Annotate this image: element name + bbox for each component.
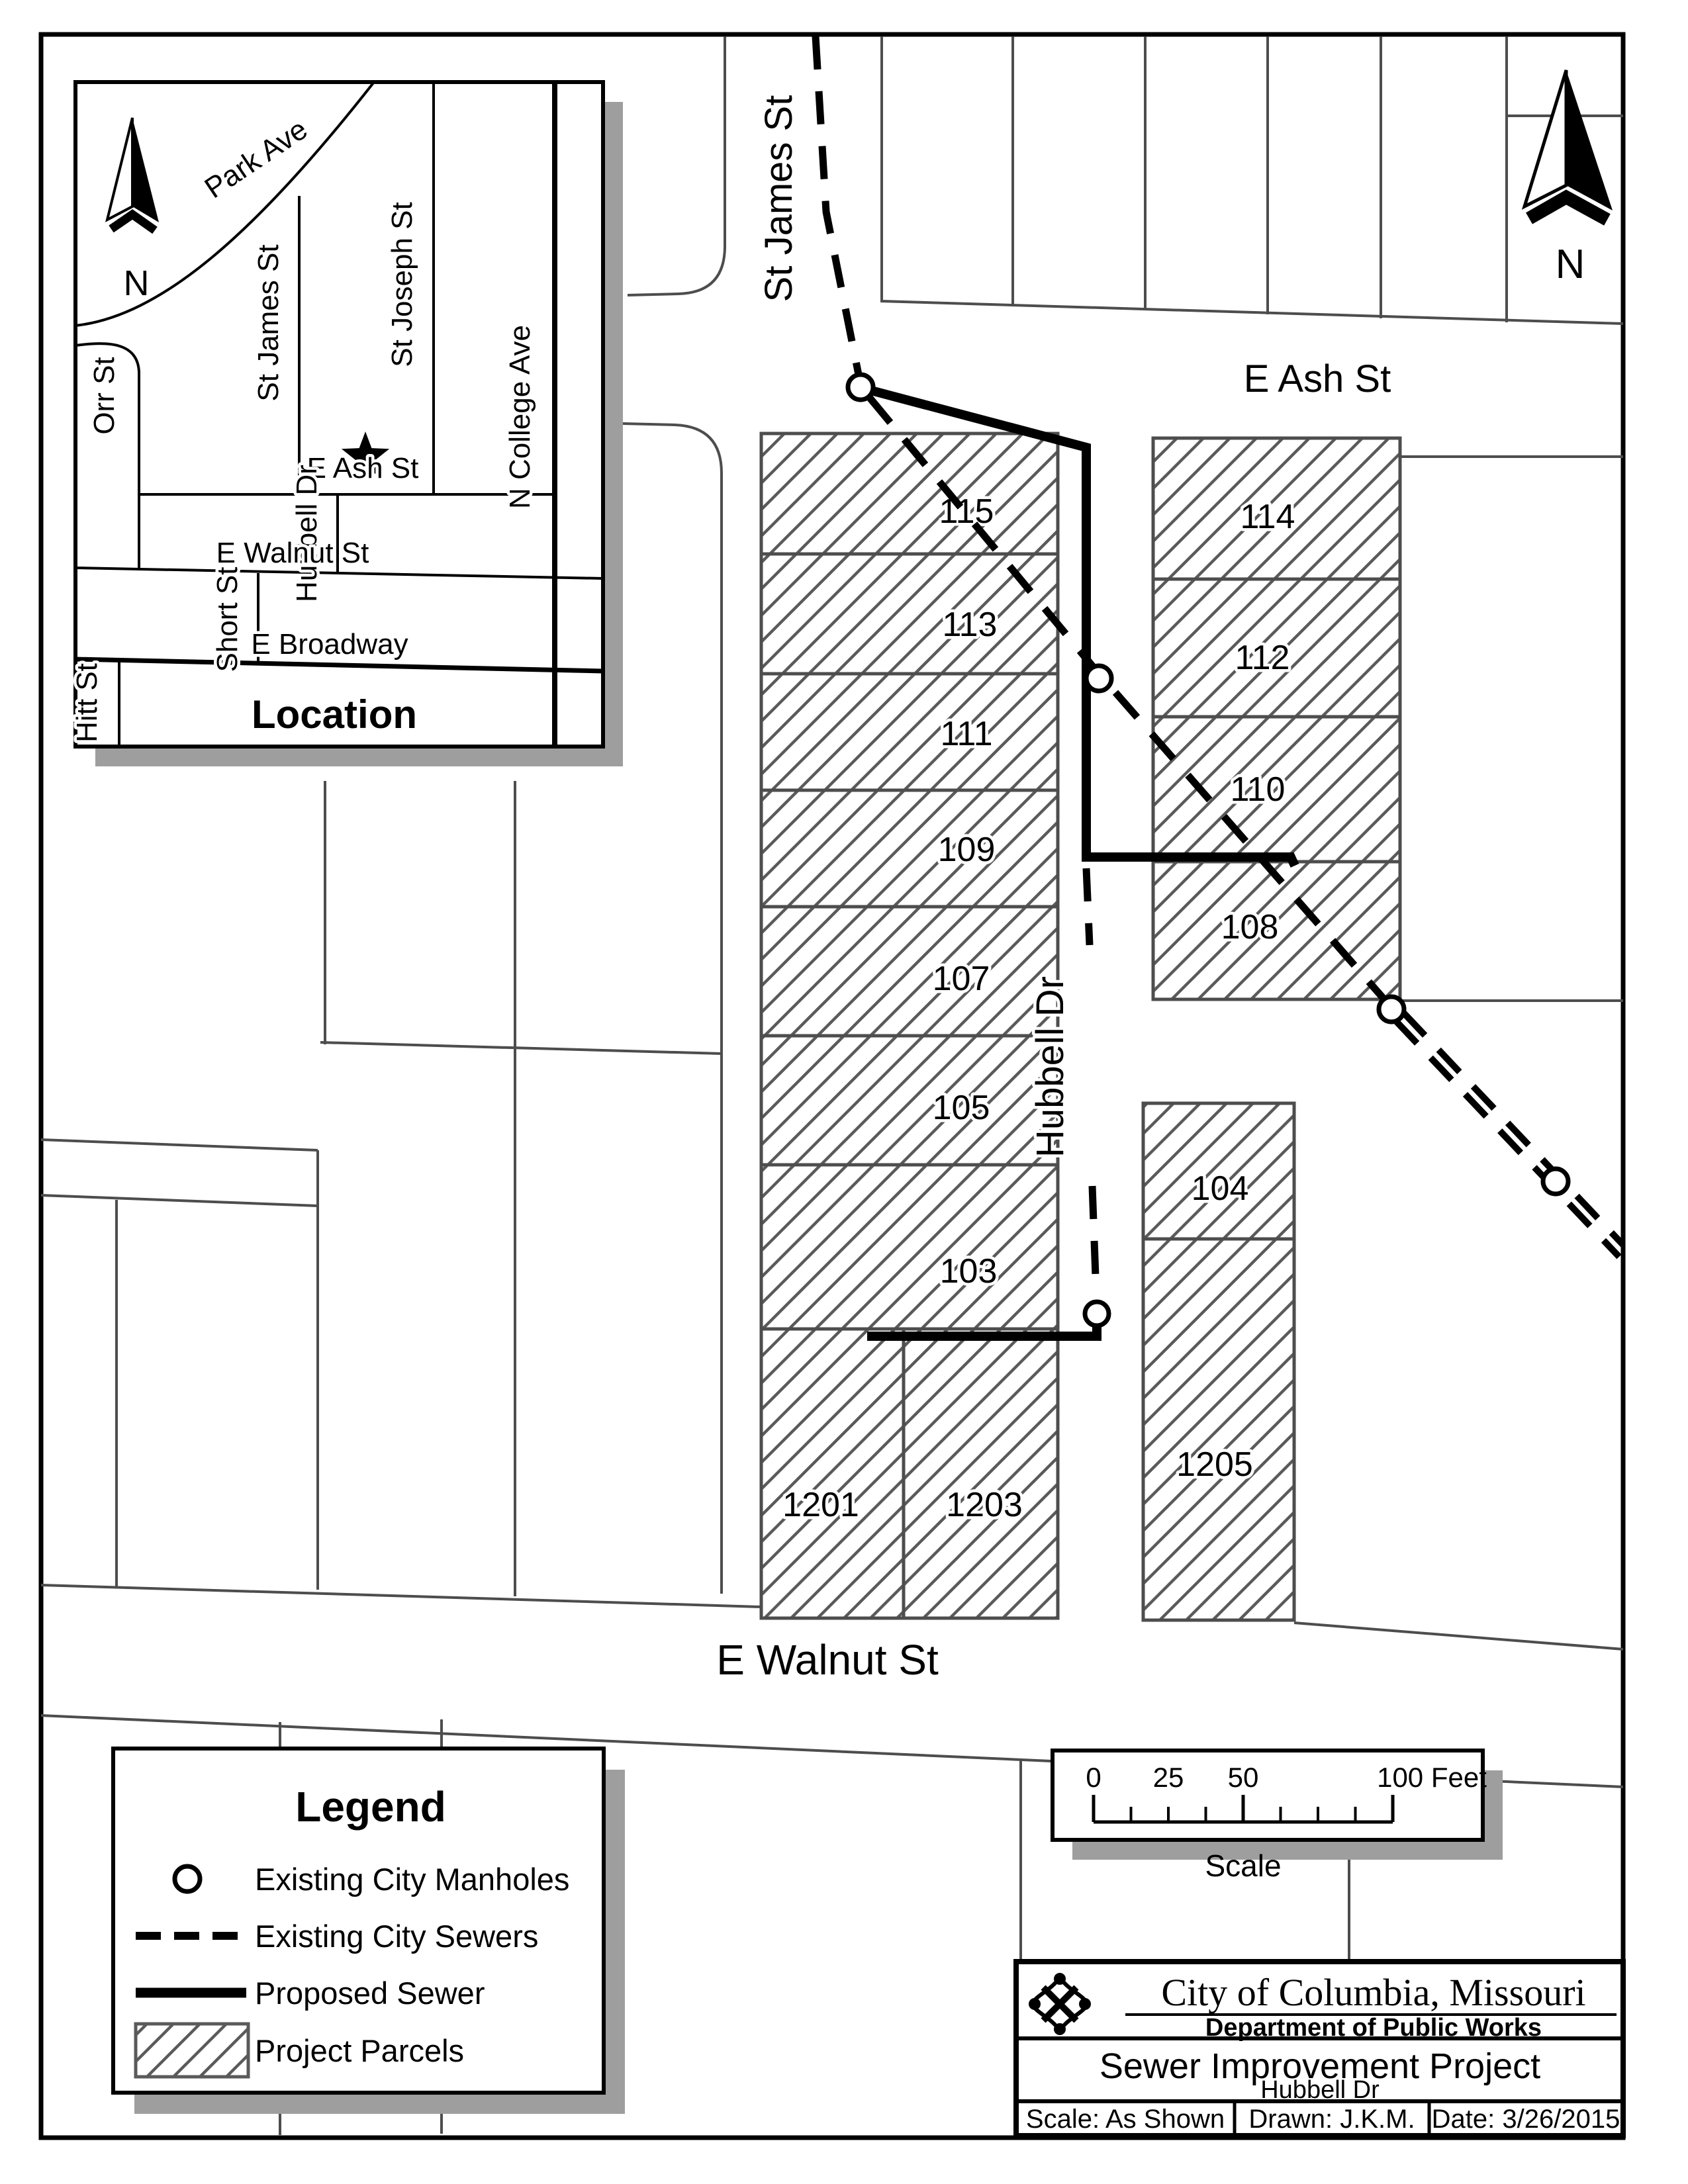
sewer-improvement-map-sheet: 115 113 111 109 107 105 103 1201 1203 11… — [0, 0, 1688, 2184]
inset-label-orr-st: Orr St — [88, 357, 120, 434]
parcel-label-105: 105 — [933, 1089, 990, 1127]
parcel-105 — [761, 1036, 1058, 1165]
inset-label-hubbell: Hubbell Dr — [291, 465, 323, 602]
parcel-label-112: 112 — [1235, 639, 1290, 677]
parcel-115 — [761, 433, 1058, 554]
parcel-label-107: 107 — [933, 960, 990, 998]
parcel-label-1205: 1205 — [1176, 1445, 1253, 1484]
inset-label-st-joseph: St Joseph St — [386, 202, 418, 367]
inset-label-e-ash: E Ash St — [307, 452, 419, 484]
inset-label-e-broadway: E Broadway — [251, 628, 408, 660]
manhole-icon — [848, 375, 873, 400]
parcel-109 — [761, 790, 1058, 907]
parcel-107 — [761, 907, 1058, 1036]
scale-tick-label: 25 — [1153, 1762, 1184, 1793]
parcel-1205 — [1143, 1239, 1294, 1620]
legend-item-label: Project Parcels — [255, 2033, 464, 2068]
parcel-label-109: 109 — [938, 831, 996, 869]
inset-map: N Park Ave St James St St Joseph St E As… — [71, 82, 623, 766]
legend-manhole-icon — [175, 1866, 200, 1891]
parcel-label-114: 114 — [1241, 498, 1295, 536]
parcel-1201 — [761, 1329, 904, 1618]
legend-title: Legend — [295, 1783, 446, 1831]
parcel-label-115: 115 — [939, 492, 994, 531]
title-block: City of Columbia, Missouri Department of… — [1016, 1962, 1623, 2136]
manhole-icon — [1379, 997, 1404, 1022]
manhole-icon — [1543, 1169, 1568, 1194]
title-block-drawn: Drawn: J.K.M. — [1248, 2105, 1415, 2134]
parcel-label-103: 103 — [940, 1252, 998, 1291]
inset-title: Location — [252, 692, 417, 737]
inset-label-short-st: Short St — [211, 567, 244, 672]
street-label-hubbell: Hubbell Dr — [1029, 976, 1072, 1158]
parcel-label-108: 108 — [1221, 908, 1279, 946]
parcel-label-113: 113 — [943, 606, 998, 644]
inset-label-n-college: N College Ave — [504, 325, 536, 509]
title-block-scale: Scale: As Shown — [1026, 2105, 1225, 2134]
scale-tick-label: 100 Feet — [1377, 1762, 1487, 1793]
manhole-icon — [1086, 666, 1111, 691]
scale-caption: Scale — [1205, 1848, 1281, 1883]
parcel-label-1201: 1201 — [782, 1486, 859, 1524]
parcel-label-104: 104 — [1192, 1169, 1249, 1208]
inset-label-st-james: St James St — [252, 244, 285, 401]
parcel-label-110: 110 — [1231, 770, 1286, 809]
scale-tick-label: 50 — [1228, 1762, 1259, 1793]
title-block-location: Hubbell Dr — [1260, 2076, 1380, 2104]
inset-label-hitt-st: Hitt St — [71, 663, 103, 743]
north-arrow-label: N — [1556, 242, 1585, 287]
street-label-e-ash: E Ash St — [1244, 357, 1391, 400]
title-block-agency: City of Columbia, Missouri — [1161, 1971, 1585, 2014]
parcel-label-1203: 1203 — [946, 1486, 1023, 1524]
legend-item-label: Existing City Sewers — [255, 1919, 538, 1954]
parcel-111 — [761, 674, 1058, 790]
inset-label-e-walnut: E Walnut St — [216, 537, 369, 569]
street-label-e-walnut: E Walnut St — [716, 1636, 939, 1684]
parcel-1203 — [904, 1329, 1058, 1618]
title-block-department: Department of Public Works — [1205, 2014, 1542, 2042]
scale-tick-label: 0 — [1086, 1762, 1101, 1793]
manhole-icon — [1085, 1302, 1109, 1326]
street-label-st-james: St James St — [757, 95, 800, 302]
title-block-date: Date: 3/26/2015 — [1432, 2105, 1620, 2134]
map-canvas: 115 113 111 109 107 105 103 1201 1203 11… — [0, 0, 1688, 2184]
legend-hatch-swatch-icon — [136, 2024, 248, 2077]
parcel-label-111: 111 — [940, 715, 992, 753]
legend-item-label: Proposed Sewer — [255, 1976, 485, 2011]
legend-item-label: Existing City Manholes — [255, 1862, 569, 1897]
parcel-103 — [761, 1165, 1058, 1329]
north-arrow-label: N — [124, 263, 150, 303]
legend: Legend Existing City Manholes Existing C… — [113, 1749, 625, 2114]
